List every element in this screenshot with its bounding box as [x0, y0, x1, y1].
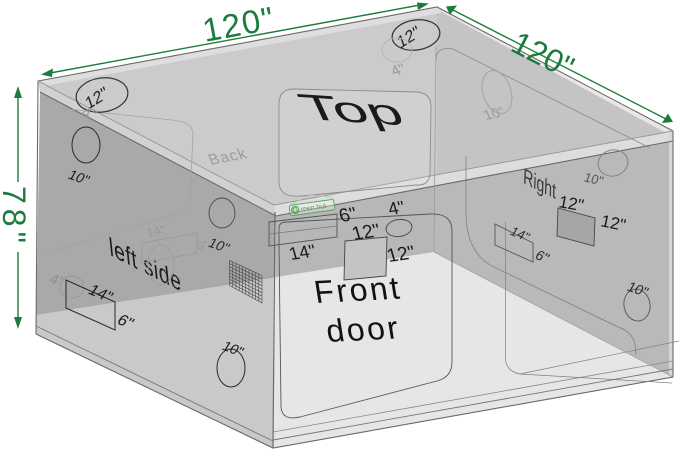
svg-text:Front: Front — [311, 270, 404, 310]
svg-text:14": 14" — [287, 241, 319, 264]
svg-text:12": 12" — [350, 221, 383, 245]
svg-text:78": 78" — [0, 186, 32, 248]
svg-text:door: door — [323, 309, 403, 349]
svg-text:12": 12" — [385, 243, 418, 267]
